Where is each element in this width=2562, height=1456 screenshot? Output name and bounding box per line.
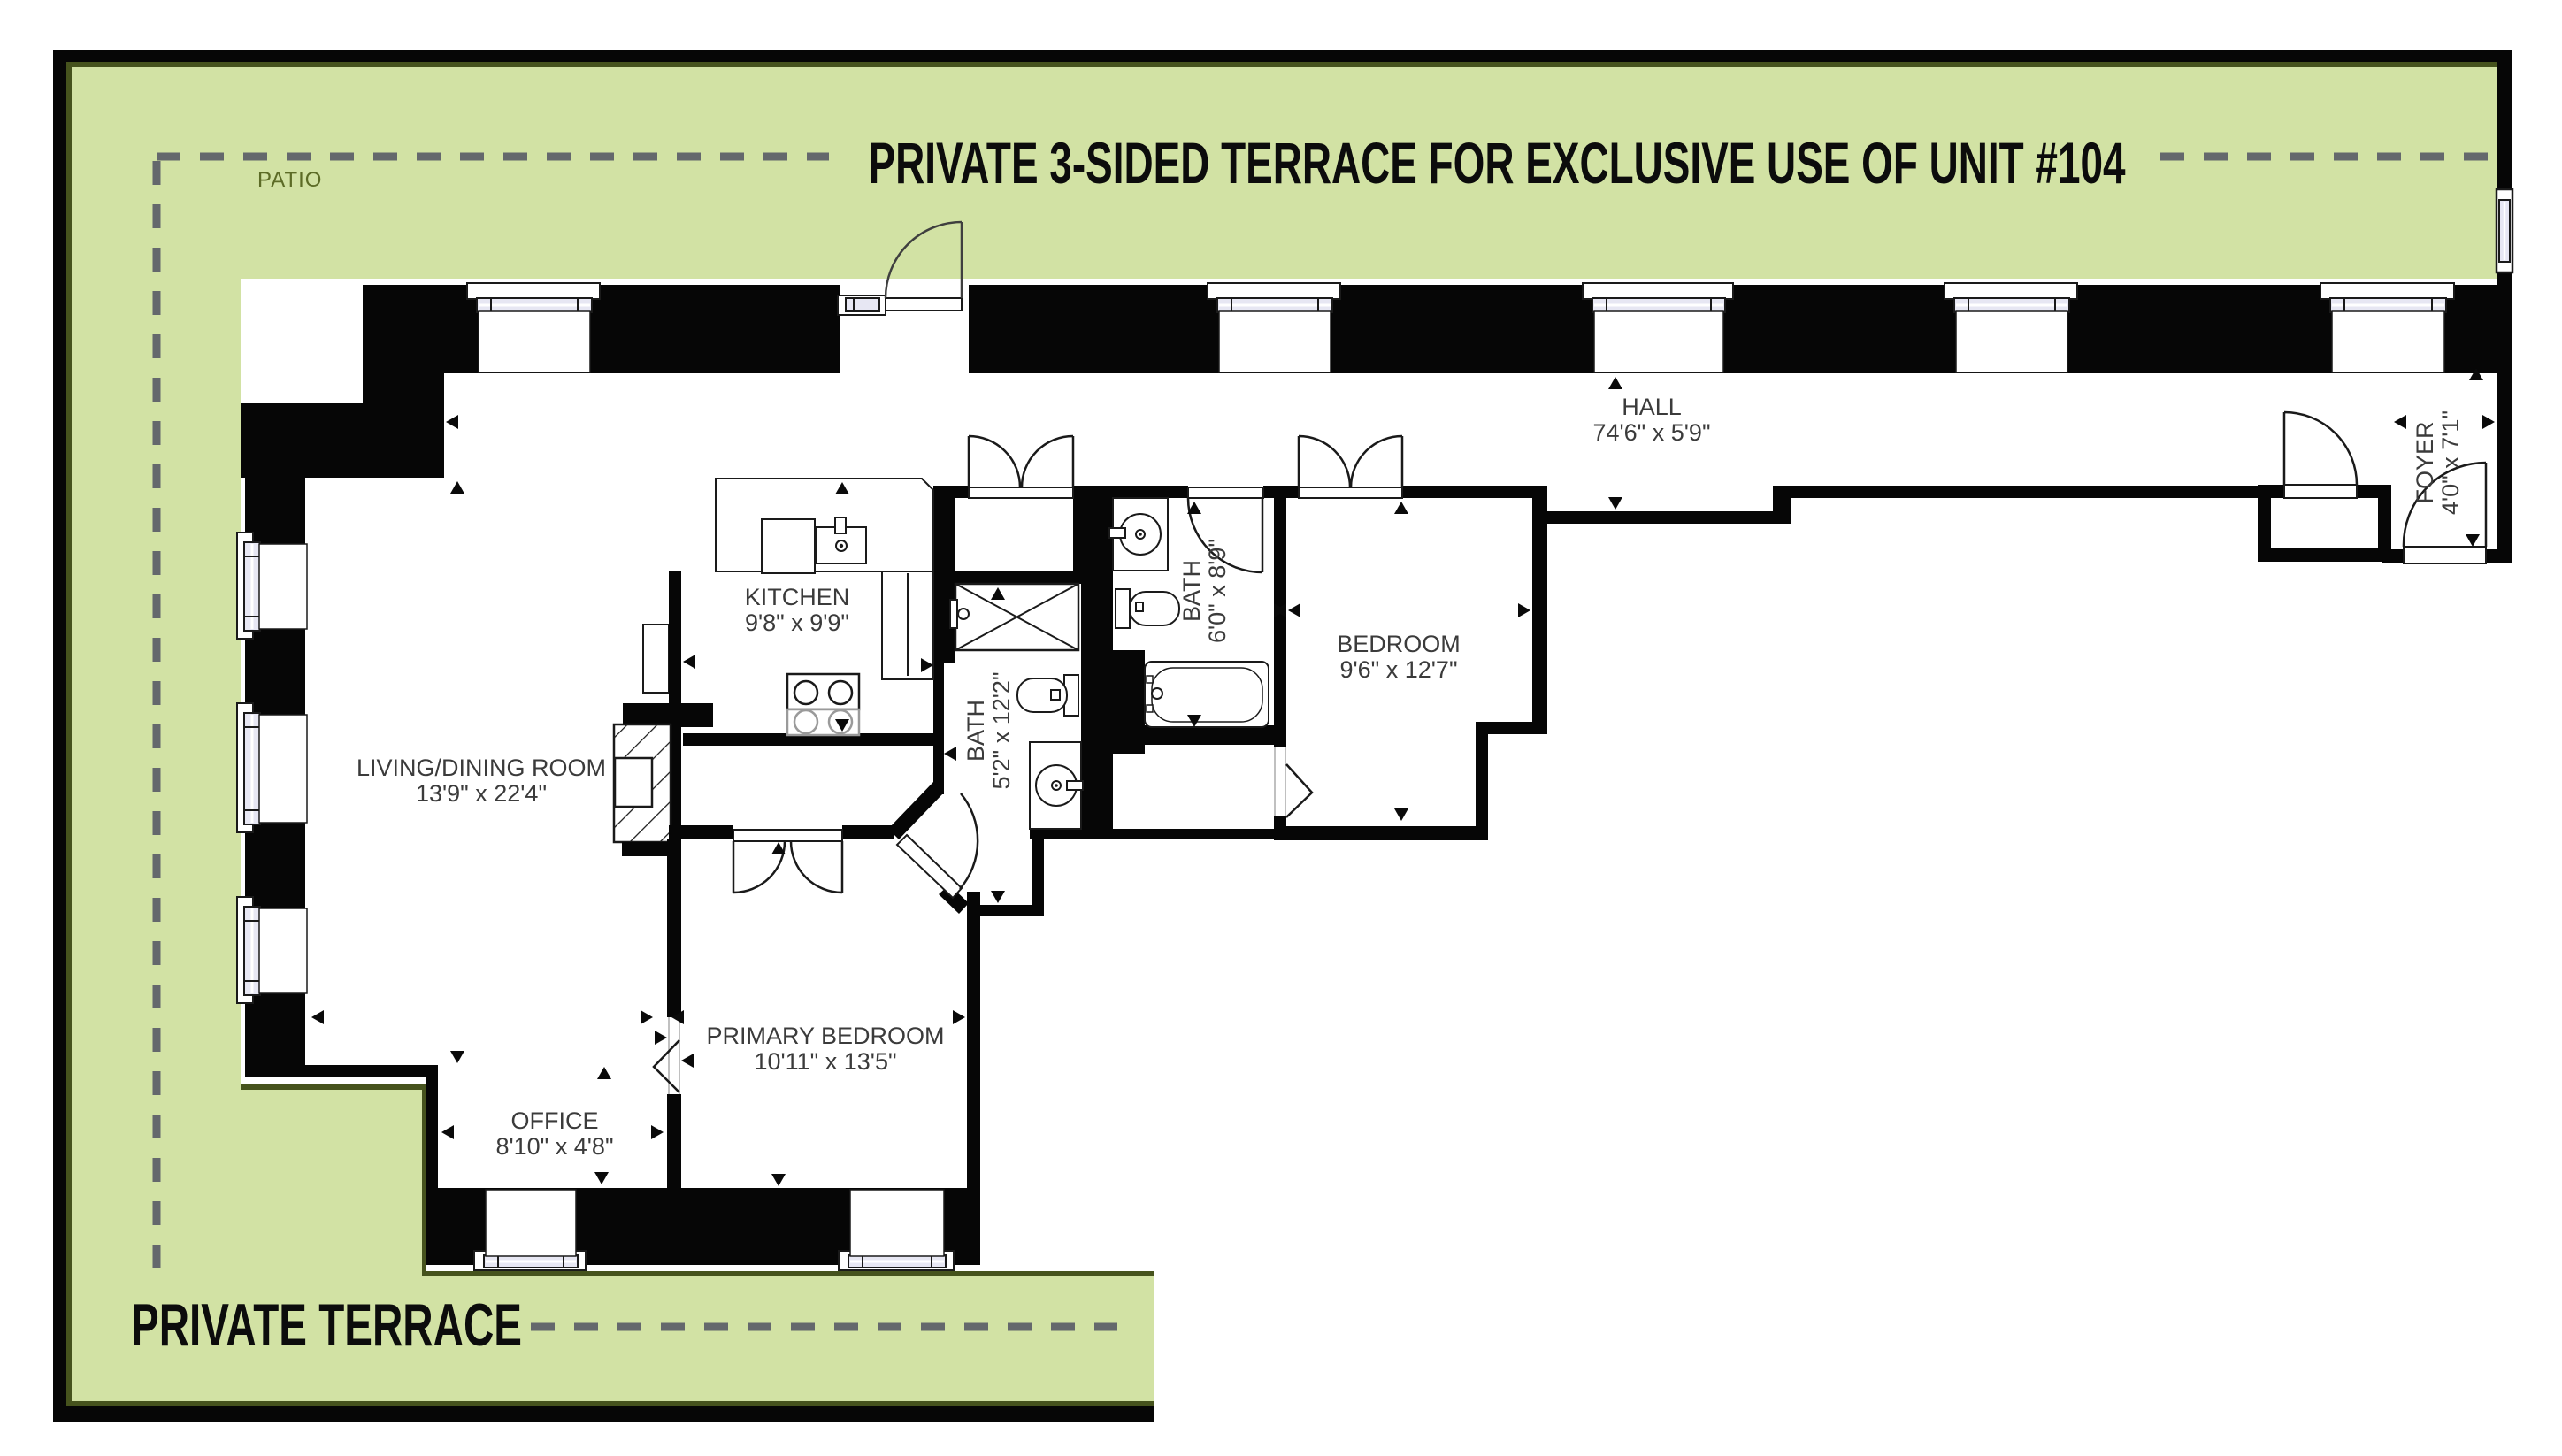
- svg-text:PRIMARY BEDROOM: PRIMARY BEDROOM: [706, 1023, 944, 1049]
- svg-text:9'8" x 9'9": 9'8" x 9'9": [745, 609, 849, 636]
- svg-text:13'9" x 22'4": 13'9" x 22'4": [416, 780, 547, 807]
- svg-text:KITCHEN: KITCHEN: [745, 584, 850, 610]
- svg-text:BATH: BATH: [1178, 560, 1205, 622]
- svg-text:74'6" x 5'9": 74'6" x 5'9": [1592, 419, 1710, 446]
- svg-text:FOYER: FOYER: [2412, 421, 2438, 503]
- svg-text:5'2" x 12'2": 5'2" x 12'2": [988, 671, 1015, 789]
- svg-text:BATH: BATH: [963, 700, 989, 762]
- svg-text:PRIVATE TERRACE: PRIVATE TERRACE: [131, 1291, 522, 1359]
- svg-text:10'11" x 13'5": 10'11" x 13'5": [754, 1048, 896, 1075]
- svg-text:PATIO: PATIO: [257, 168, 322, 192]
- svg-text:6'0" x 8'9": 6'0" x 8'9": [1204, 539, 1231, 643]
- svg-text:4'0" x 7'1": 4'0" x 7'1": [2437, 410, 2464, 515]
- svg-text:PRIVATE 3-SIDED TERRACE FOR EX: PRIVATE 3-SIDED TERRACE FOR EXCLUSIVE US…: [869, 130, 2126, 195]
- svg-text:LIVING/DINING ROOM: LIVING/DINING ROOM: [357, 755, 606, 781]
- svg-text:8'10" x 4'8": 8'10" x 4'8": [495, 1133, 613, 1160]
- svg-text:9'6" x 12'7": 9'6" x 12'7": [1339, 656, 1457, 683]
- svg-text:HALL: HALL: [1622, 394, 1682, 420]
- svg-text:BEDROOM: BEDROOM: [1337, 631, 1461, 657]
- svg-text:OFFICE: OFFICE: [511, 1107, 599, 1134]
